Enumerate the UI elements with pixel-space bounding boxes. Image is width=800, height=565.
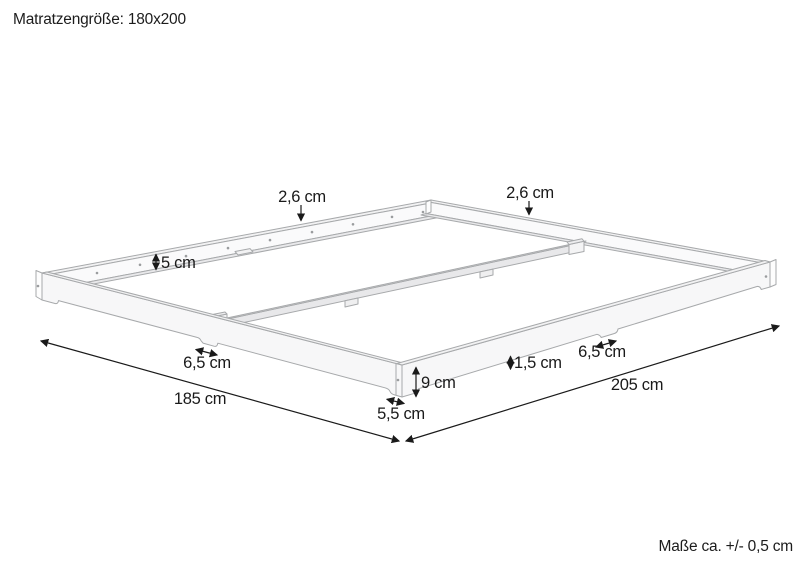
center-support-rail bbox=[210, 239, 586, 332]
front-right-rail-outer-face bbox=[402, 262, 770, 397]
dim-arrow-corner-foot bbox=[387, 399, 404, 403]
product-dimension-page: Matratzengröße: 180x200 bbox=[0, 0, 800, 565]
frame-drawing bbox=[36, 200, 776, 397]
back-left-rail bbox=[42, 200, 441, 292]
dim-label-bottom-clearance: 1,5 cm bbox=[514, 354, 562, 372]
tolerance-footnote: Maße ca. +/- 0,5 cm bbox=[659, 538, 793, 556]
corner-joint-end-grain bbox=[426, 200, 431, 214]
dim-label-top-edge-back-left: 2,6 cm bbox=[278, 188, 326, 206]
dim-label-mid-foot-right: 6,5 cm bbox=[578, 343, 626, 361]
back-left-rail-top-face bbox=[42, 200, 436, 275]
center-rail-front-face bbox=[223, 243, 582, 327]
right-corner-end-cap bbox=[770, 260, 776, 288]
dim-label-frame-height: 9 cm bbox=[421, 374, 456, 392]
front-left-rail-top-face bbox=[42, 272, 407, 365]
dim-label-outer-width: 185 cm bbox=[174, 390, 226, 408]
dim-label-outer-length: 205 cm bbox=[611, 376, 663, 394]
back-right-rail-top-face bbox=[426, 200, 770, 264]
back-left-rail-inner-face bbox=[47, 202, 436, 290]
bed-frame-diagram: 2,6 cm 2,6 cm 5 cm 6,5 cm 6,5 cm 9 cm 1,… bbox=[0, 0, 800, 565]
dim-label-corner-foot: 5,5 cm bbox=[377, 405, 425, 423]
dim-label-top-edge-back-right: 2,6 cm bbox=[506, 184, 554, 202]
dim-label-inner-rail-height: 5 cm bbox=[161, 254, 196, 272]
center-rail-top-face bbox=[223, 241, 586, 320]
dim-label-mid-foot-left: 6,5 cm bbox=[183, 354, 231, 372]
